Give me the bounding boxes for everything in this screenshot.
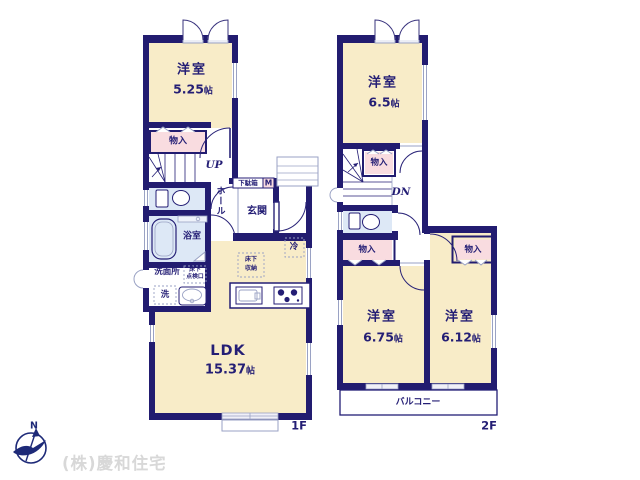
closet-label-2f-top: 物入	[370, 159, 387, 168]
washroom-label: 洗面所	[154, 268, 180, 277]
hall-label: ホール	[215, 186, 224, 216]
room-size-65: 6.5帖	[368, 97, 399, 110]
stairs-down-label: DN	[392, 187, 411, 198]
floor1-stairs	[149, 154, 195, 182]
inspection-label-line1: 床下	[189, 268, 201, 274]
balcony-label: バルコニー	[396, 399, 441, 408]
room-label-65: 洋室	[368, 77, 398, 90]
room-size-612: 6.12帖	[441, 332, 481, 345]
washer-label: 洗	[161, 291, 170, 300]
closet-label-2f-right: 物入	[464, 246, 481, 255]
room-label-675: 洋室	[367, 311, 397, 324]
closet-label-1f: 物入	[169, 138, 187, 147]
inspection-label-line2: 点検口	[186, 275, 203, 281]
underfloor-storage-line1: 床下	[245, 257, 257, 263]
room-label-ldk: LDK	[210, 344, 246, 359]
entrance-label: 玄関	[247, 207, 267, 217]
room-size-ldk: 15.37帖	[205, 364, 255, 377]
entrance-porch	[277, 157, 318, 186]
floor-label-1f: 1F	[291, 420, 307, 432]
shoebox-label: 下駄箱	[238, 180, 258, 187]
company-watermark: (株)慶和住宅	[62, 450, 167, 474]
underfloor-storage-line2: 収納	[245, 266, 257, 272]
shoebox-m-label: M	[265, 179, 272, 187]
closet-label-2f-left: 物入	[358, 246, 375, 255]
room-label-612: 洋室	[445, 311, 475, 324]
kitchen-counter	[230, 283, 310, 308]
room-size-675: 6.75帖	[363, 332, 403, 345]
floor-label-2f: 2F	[481, 420, 497, 432]
room-label-yoshitsu525: 洋室	[177, 64, 207, 77]
north-indicator-label: N	[30, 421, 38, 431]
bath-label: 浴室	[183, 233, 201, 242]
fridge-label: 冷	[290, 243, 299, 252]
floorplan-drawing	[0, 0, 640, 480]
room-size-yoshitsu525: 5.25帖	[173, 84, 213, 97]
stairs-up-label: UP	[205, 160, 222, 171]
floorplan-image: 洋室 5.25帖 物入 UP ホール 下駄箱 M 玄関 浴室 洗面所 床下 点検…	[0, 0, 640, 480]
compass-icon	[13, 428, 46, 463]
